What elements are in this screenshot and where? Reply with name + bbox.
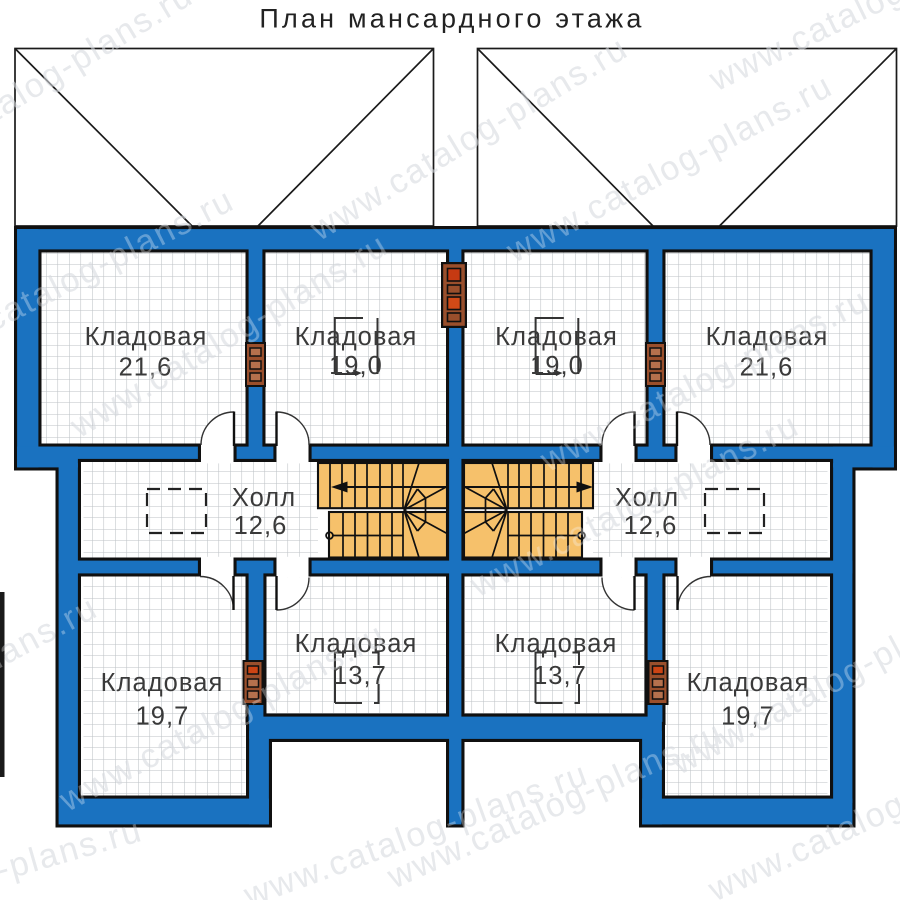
svg-text:План мансардного этажа: План мансардного этажа: [259, 4, 644, 34]
svg-text:Кладовая: Кладовая: [495, 323, 618, 351]
svg-text:19,0: 19,0: [329, 352, 383, 380]
svg-text:12,6: 12,6: [234, 512, 288, 540]
svg-text:13,7: 13,7: [533, 662, 587, 690]
svg-text:Холл: Холл: [232, 484, 296, 512]
svg-text:19,0: 19,0: [530, 352, 584, 380]
svg-text:Кладовая: Кладовая: [495, 630, 618, 658]
svg-text:Кладовая: Кладовая: [295, 323, 418, 351]
svg-text:Кладовая: Кладовая: [101, 669, 224, 697]
